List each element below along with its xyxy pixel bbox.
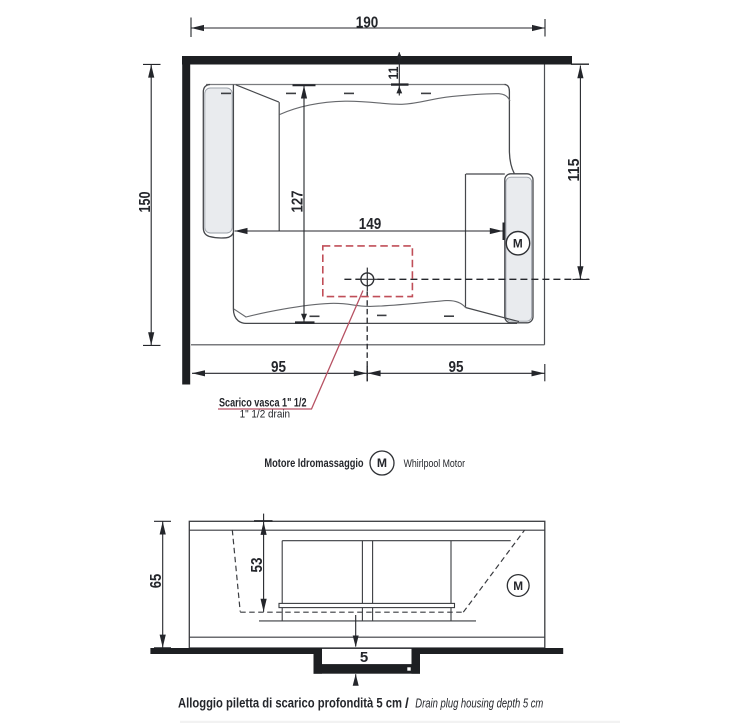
svg-text:95: 95	[271, 359, 286, 376]
svg-text:53: 53	[249, 557, 266, 572]
svg-text:Drain plug housing depth 5 cm: Drain plug housing depth 5 cm	[415, 696, 543, 711]
svg-text:M: M	[377, 456, 387, 470]
svg-text:95: 95	[449, 359, 464, 376]
svg-text:Motore Idromassaggio: Motore Idromassaggio	[264, 458, 363, 470]
svg-text:65: 65	[148, 573, 165, 588]
svg-text:5: 5	[360, 649, 368, 666]
svg-text:/: /	[405, 696, 409, 711]
svg-text:127: 127	[290, 191, 307, 213]
svg-text:150: 150	[137, 192, 154, 213]
svg-text:11: 11	[386, 66, 401, 79]
svg-text:Alloggio piletta di scarico pr: Alloggio piletta di scarico profondità 5…	[178, 696, 402, 711]
svg-text:M: M	[513, 579, 523, 593]
svg-text:1" 1/2 drain: 1" 1/2 drain	[240, 409, 291, 421]
svg-text:M: M	[513, 237, 523, 251]
svg-text:115: 115	[566, 158, 583, 181]
svg-text:149: 149	[359, 216, 382, 233]
svg-text:190: 190	[356, 14, 379, 31]
svg-text:Whirlpool Motor: Whirlpool Motor	[404, 458, 466, 470]
